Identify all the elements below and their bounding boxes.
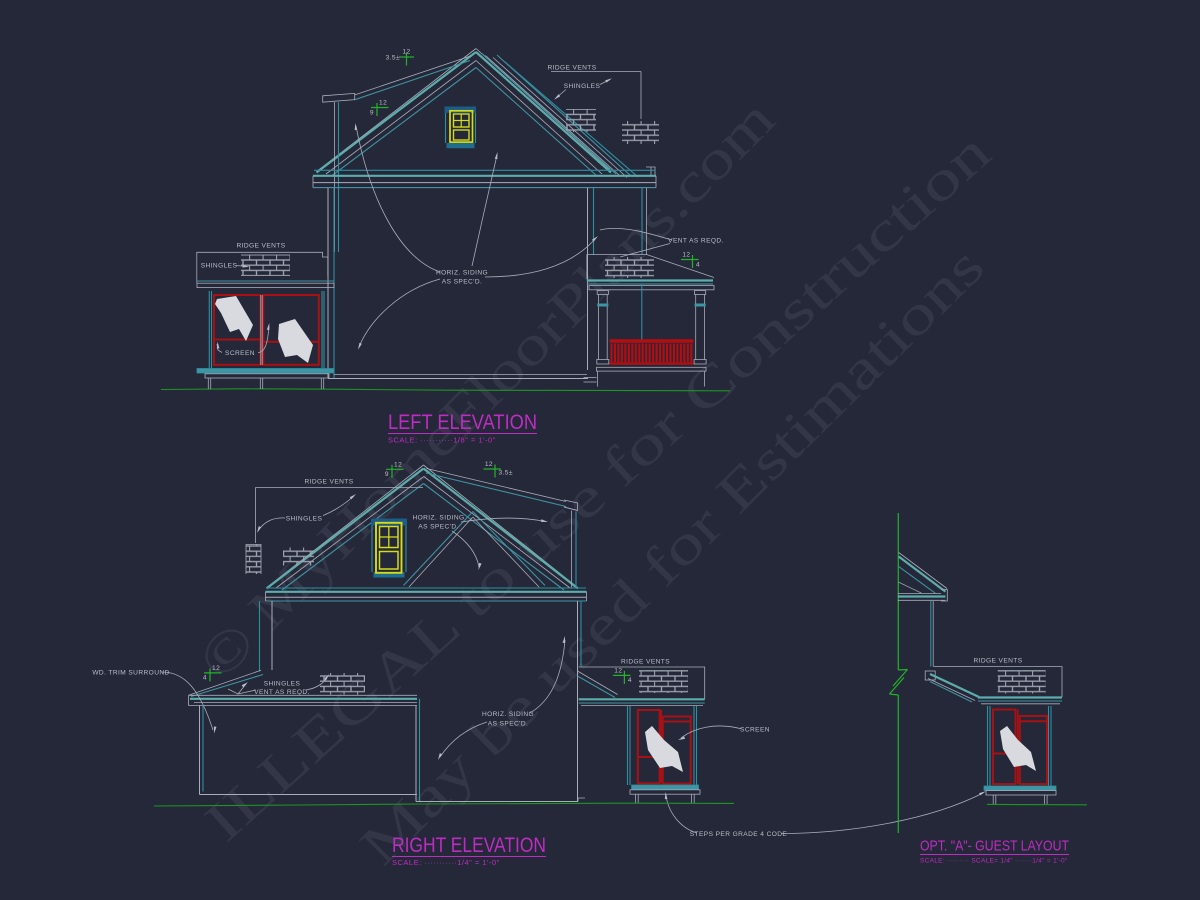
svg-text:9: 9 [385, 471, 389, 478]
svg-text:RIDGE VENTS: RIDGE VENTS [973, 658, 1022, 665]
svg-text:RIDGE VENTS: RIDGE VENTS [304, 479, 353, 486]
svg-text:SHINGLES: SHINGLES [201, 263, 238, 270]
svg-text:SHINGLES: SHINGLES [286, 516, 323, 523]
svg-text:AS SPEC'D.: AS SPEC'D. [418, 524, 458, 531]
svg-text:VENT AS REQD.: VENT AS REQD. [668, 238, 724, 245]
svg-text:12: 12 [614, 668, 622, 675]
svg-text:RIDGE VENTS: RIDGE VENTS [621, 659, 670, 666]
svg-text:SCALE: ···········1/8" = 1'-0": SCALE: ···········1/8" = 1'-0" [388, 436, 496, 445]
svg-text:HORIZ. SIDING: HORIZ. SIDING [436, 270, 488, 277]
svg-text:12: 12 [402, 49, 410, 56]
svg-text:4: 4 [628, 677, 632, 684]
svg-text:9: 9 [370, 109, 374, 116]
svg-text:SCALE: ········· SCALE= 1/4" ·: SCALE: ········· SCALE= 1/4" ·······1/4"… [920, 858, 1068, 865]
svg-text:SCREEN: SCREEN [225, 350, 255, 357]
svg-text:HORIZ. SIDING: HORIZ. SIDING [412, 515, 464, 522]
svg-text:HORIZ. SIDING: HORIZ. SIDING [482, 711, 534, 718]
svg-text:SHINGLES: SHINGLES [264, 681, 301, 688]
svg-text:RIDGE VENTS: RIDGE VENTS [547, 65, 596, 72]
svg-text:SCREEN: SCREEN [740, 727, 770, 734]
svg-text:STEPS PER GRADE 4 CODE: STEPS PER GRADE 4 CODE [690, 831, 788, 838]
svg-text:WD. TRIM SURROUND: WD. TRIM SURROUND [92, 670, 169, 677]
svg-text:3.5±: 3.5± [499, 470, 513, 477]
svg-text:LEFT ELEVATION: LEFT ELEVATION [388, 411, 537, 434]
svg-text:OPT. "A"- GUEST LAYOUT: OPT. "A"- GUEST LAYOUT [920, 839, 1069, 855]
svg-text:SCALE: ···········1/4" = 1'-0": SCALE: ···········1/4" = 1'-0" [392, 858, 500, 867]
svg-text:4: 4 [696, 261, 700, 268]
svg-text:12: 12 [212, 665, 220, 672]
svg-text:12: 12 [394, 462, 402, 469]
svg-text:SHINGLES: SHINGLES [564, 83, 601, 90]
svg-text:AS SPEC'D.: AS SPEC'D. [442, 279, 482, 286]
svg-text:RIGHT ELEVATION: RIGHT ELEVATION [392, 834, 546, 857]
svg-text:3.5±: 3.5± [386, 55, 400, 62]
svg-text:12: 12 [379, 100, 387, 107]
svg-text:VENT AS REQD.: VENT AS REQD. [254, 689, 310, 696]
svg-text:4: 4 [203, 675, 207, 682]
svg-text:RIDGE VENTS: RIDGE VENTS [236, 243, 285, 250]
svg-text:12: 12 [682, 252, 690, 259]
svg-text:AS SPEC'D.: AS SPEC'D. [488, 721, 528, 728]
svg-text:12: 12 [485, 461, 493, 468]
